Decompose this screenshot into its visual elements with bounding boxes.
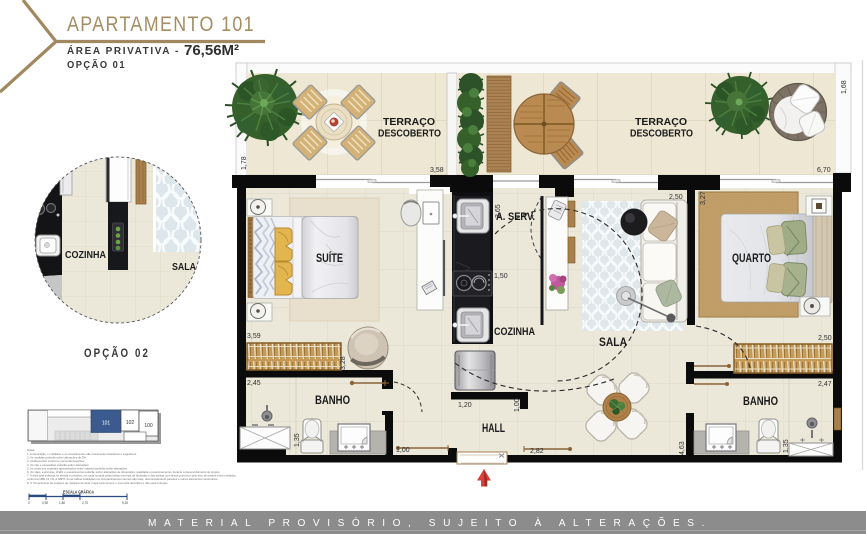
svg-text:6,70: 6,70	[817, 167, 831, 174]
svg-text:1,35: 1,35	[783, 439, 790, 453]
svg-text:8. O fornecimento de espaços d: 8. O fornecimento de espaços de máquina …	[27, 481, 169, 485]
svg-text:BANHO: BANHO	[315, 393, 350, 407]
svg-text:OPÇÃO 02: OPÇÃO 02	[84, 347, 150, 360]
svg-text:1,80: 1,80	[59, 501, 65, 505]
svg-text:ESCALA GRÁFICA: ESCALA GRÁFICA	[63, 489, 95, 495]
svg-text:1,00: 1,00	[514, 398, 521, 412]
svg-text:1,68: 1,68	[841, 80, 848, 94]
svg-text:COZINHA: COZINHA	[494, 326, 535, 338]
svg-text:3,65: 3,65	[495, 204, 502, 218]
svg-text:OPÇÃO 01: OPÇÃO 01	[67, 58, 126, 71]
svg-text:101: 101	[102, 421, 111, 427]
svg-text:DESCOBERTO: DESCOBERTO	[378, 128, 441, 140]
svg-text:TERRAÇO: TERRAÇO	[383, 116, 435, 128]
svg-text:4,63: 4,63	[679, 441, 686, 455]
svg-text:SALA: SALA	[599, 335, 627, 349]
svg-text:2,82: 2,82	[530, 448, 544, 455]
svg-text:QUARTO: QUARTO	[732, 251, 771, 265]
svg-text:9,20: 9,20	[122, 501, 128, 505]
svg-text:76,56M²: 76,56M²	[184, 42, 239, 59]
svg-text:1,50: 1,50	[494, 273, 508, 280]
svg-text:1,00: 1,00	[396, 447, 410, 454]
svg-text:1,20: 1,20	[458, 402, 472, 409]
svg-text:2,50: 2,50	[669, 194, 683, 201]
svg-text:2,47: 2,47	[818, 381, 832, 388]
svg-text:SALA: SALA	[172, 262, 196, 273]
svg-text:2,50: 2,50	[818, 335, 832, 342]
svg-text:ÁREA PRIVATIVA -: ÁREA PRIVATIVA -	[67, 44, 180, 57]
svg-text:HALL: HALL	[482, 421, 505, 435]
svg-text:0,90: 0,90	[42, 501, 48, 505]
svg-text:3,59: 3,59	[247, 333, 261, 340]
svg-text:3,28: 3,28	[340, 356, 347, 370]
svg-text:COZINHA: COZINHA	[65, 250, 106, 261]
svg-text:TERRAÇO: TERRAÇO	[635, 116, 687, 128]
svg-text:SUÍTE: SUÍTE	[316, 250, 343, 265]
svg-text:0: 0	[28, 501, 30, 505]
svg-text:2,70: 2,70	[82, 501, 88, 505]
svg-text:1,35: 1,35	[294, 433, 301, 447]
svg-text:100: 100	[144, 423, 153, 429]
svg-text:3,58: 3,58	[430, 167, 444, 174]
svg-text:102: 102	[126, 420, 135, 426]
svg-text:BANHO: BANHO	[743, 394, 778, 408]
svg-text:1,78: 1,78	[241, 156, 248, 170]
svg-text:DESCOBERTO: DESCOBERTO	[630, 128, 693, 140]
svg-text:APARTAMENTO 101: APARTAMENTO 101	[67, 13, 255, 36]
svg-text:2,45: 2,45	[247, 380, 261, 387]
svg-text:3,27: 3,27	[700, 191, 707, 205]
svg-text:MATERIAL PROVISÓRIO, SUJEITO À: MATERIAL PROVISÓRIO, SUJEITO À ALTERAÇÕE…	[148, 516, 712, 529]
